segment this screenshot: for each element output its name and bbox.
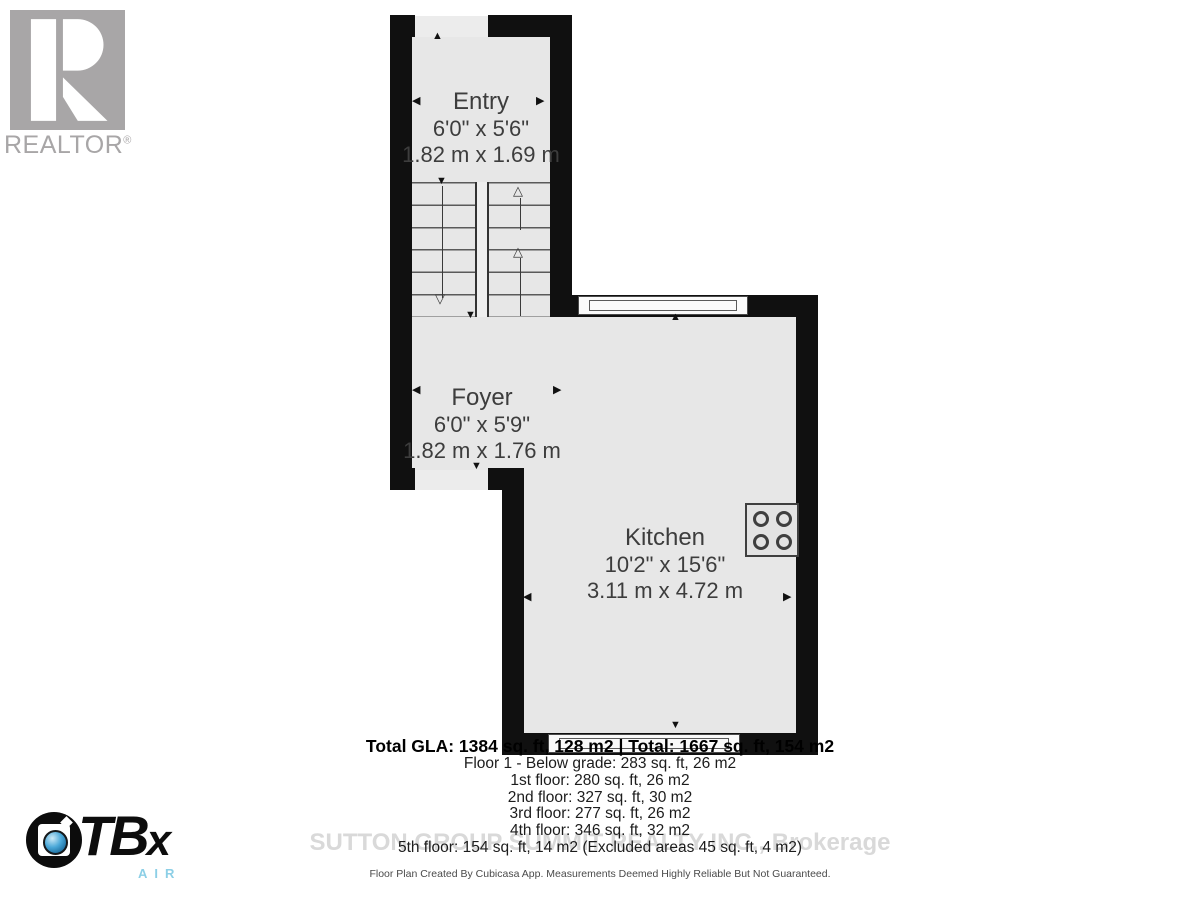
foyer-door-opening bbox=[413, 470, 488, 490]
stair-up-arrow-2-icon: △ bbox=[513, 245, 523, 258]
kitchen-arrow-left-icon: ◀ bbox=[523, 592, 531, 603]
stair-down-start-marker-icon: ▼ bbox=[436, 176, 447, 187]
area-summary: Total GLA: 1384 sq. ft, 128 m2 | Total: … bbox=[300, 736, 900, 857]
ctbx-air-text: AIR bbox=[138, 866, 181, 881]
room-dim-imperial: 10'2" x 15'6" bbox=[535, 552, 795, 578]
camera-body-icon bbox=[38, 824, 70, 856]
realtor-logo bbox=[10, 10, 125, 130]
realtor-r-icon bbox=[10, 10, 125, 130]
floor-area-line: 1st floor: 280 sq. ft, 26 m2 bbox=[300, 773, 900, 790]
room-dim-imperial: 6'0" x 5'9" bbox=[382, 412, 582, 438]
wall-foyer-bottom-right bbox=[488, 468, 524, 490]
room-name: Foyer bbox=[382, 384, 582, 412]
railing-end-marker-icon: ▼ bbox=[465, 310, 476, 321]
floor-area-line: 2nd floor: 327 sq. ft, 30 m2 bbox=[300, 790, 900, 807]
kitchen-arrow-down-icon: ▼ bbox=[670, 720, 681, 731]
stair-direction-line-up-2 bbox=[520, 258, 521, 316]
floor-area-line: Floor 1 - Below grade: 283 sq. ft, 26 m2 bbox=[300, 756, 900, 773]
entry-door-opening bbox=[415, 16, 488, 37]
room-dim-metric: 3.11 m x 4.72 m bbox=[535, 578, 795, 604]
ctbx-x-text: x bbox=[147, 816, 168, 865]
camera-lens-icon bbox=[43, 830, 68, 855]
stair-up-arrow-1-icon: △ bbox=[513, 184, 523, 197]
floor-area-line: 4th floor: 346 sq. ft, 32 m2 bbox=[300, 823, 900, 840]
window-pane bbox=[589, 300, 737, 311]
room-dim-imperial: 6'0" x 5'6" bbox=[392, 116, 570, 142]
room-dim-metric: 1.82 m x 1.69 m bbox=[392, 142, 570, 168]
wall-top-left bbox=[390, 15, 415, 37]
wall-foyer-bottom-left bbox=[390, 468, 415, 490]
staircase: ▼ ▽ △ △ bbox=[412, 182, 550, 317]
total-gla-line: Total GLA: 1384 sq. ft, 128 m2 | Total: … bbox=[300, 736, 900, 756]
room-name: Kitchen bbox=[535, 524, 795, 552]
entry-width-arrow-up-icon: ▲ bbox=[432, 31, 443, 42]
ctbx-wordmark: TBx bbox=[78, 804, 168, 873]
room-dim-metric: 1.82 m x 1.76 m bbox=[382, 438, 582, 464]
stair-down-arrow-icon: ▽ bbox=[435, 292, 445, 305]
stair-railing bbox=[475, 182, 489, 317]
realtor-wordmark-text: REALTOR bbox=[4, 131, 123, 159]
room-name: Entry bbox=[392, 88, 570, 116]
ctbx-circle-icon bbox=[26, 812, 82, 868]
wall-kitchen-right bbox=[796, 295, 818, 755]
stair-direction-line-down bbox=[442, 186, 443, 298]
kitchen-arrow-up-icon: ▲ bbox=[670, 312, 681, 323]
room-label-entry: Entry 6'0" x 5'6" 1.82 m x 1.69 m bbox=[392, 88, 570, 168]
room-label-kitchen: Kitchen 10'2" x 15'6" 3.11 m x 4.72 m bbox=[535, 524, 795, 604]
ctbx-air-logo: TBx AIR bbox=[26, 806, 216, 884]
disclaimer-note: Floor Plan Created By Cubicasa App. Meas… bbox=[300, 868, 900, 880]
stair-direction-line-up-1 bbox=[520, 198, 521, 230]
ctbx-tb-text: TB bbox=[78, 804, 147, 867]
registered-mark: ® bbox=[123, 135, 132, 147]
floorplan-page: REALTOR® SUTTON GROUP SUMMIT REALTY INC.… bbox=[0, 0, 1200, 900]
room-label-foyer: Foyer 6'0" x 5'9" 1.82 m x 1.76 m bbox=[382, 384, 582, 464]
floor-area-line: 5th floor: 154 sq. ft, 14 m2 (Excluded a… bbox=[300, 840, 900, 857]
kitchen-window-top bbox=[578, 296, 748, 315]
floor-area-line: 3rd floor: 277 sq. ft, 26 m2 bbox=[300, 806, 900, 823]
wall-kitchen-left bbox=[502, 490, 524, 755]
realtor-wordmark: REALTOR® bbox=[4, 131, 136, 160]
